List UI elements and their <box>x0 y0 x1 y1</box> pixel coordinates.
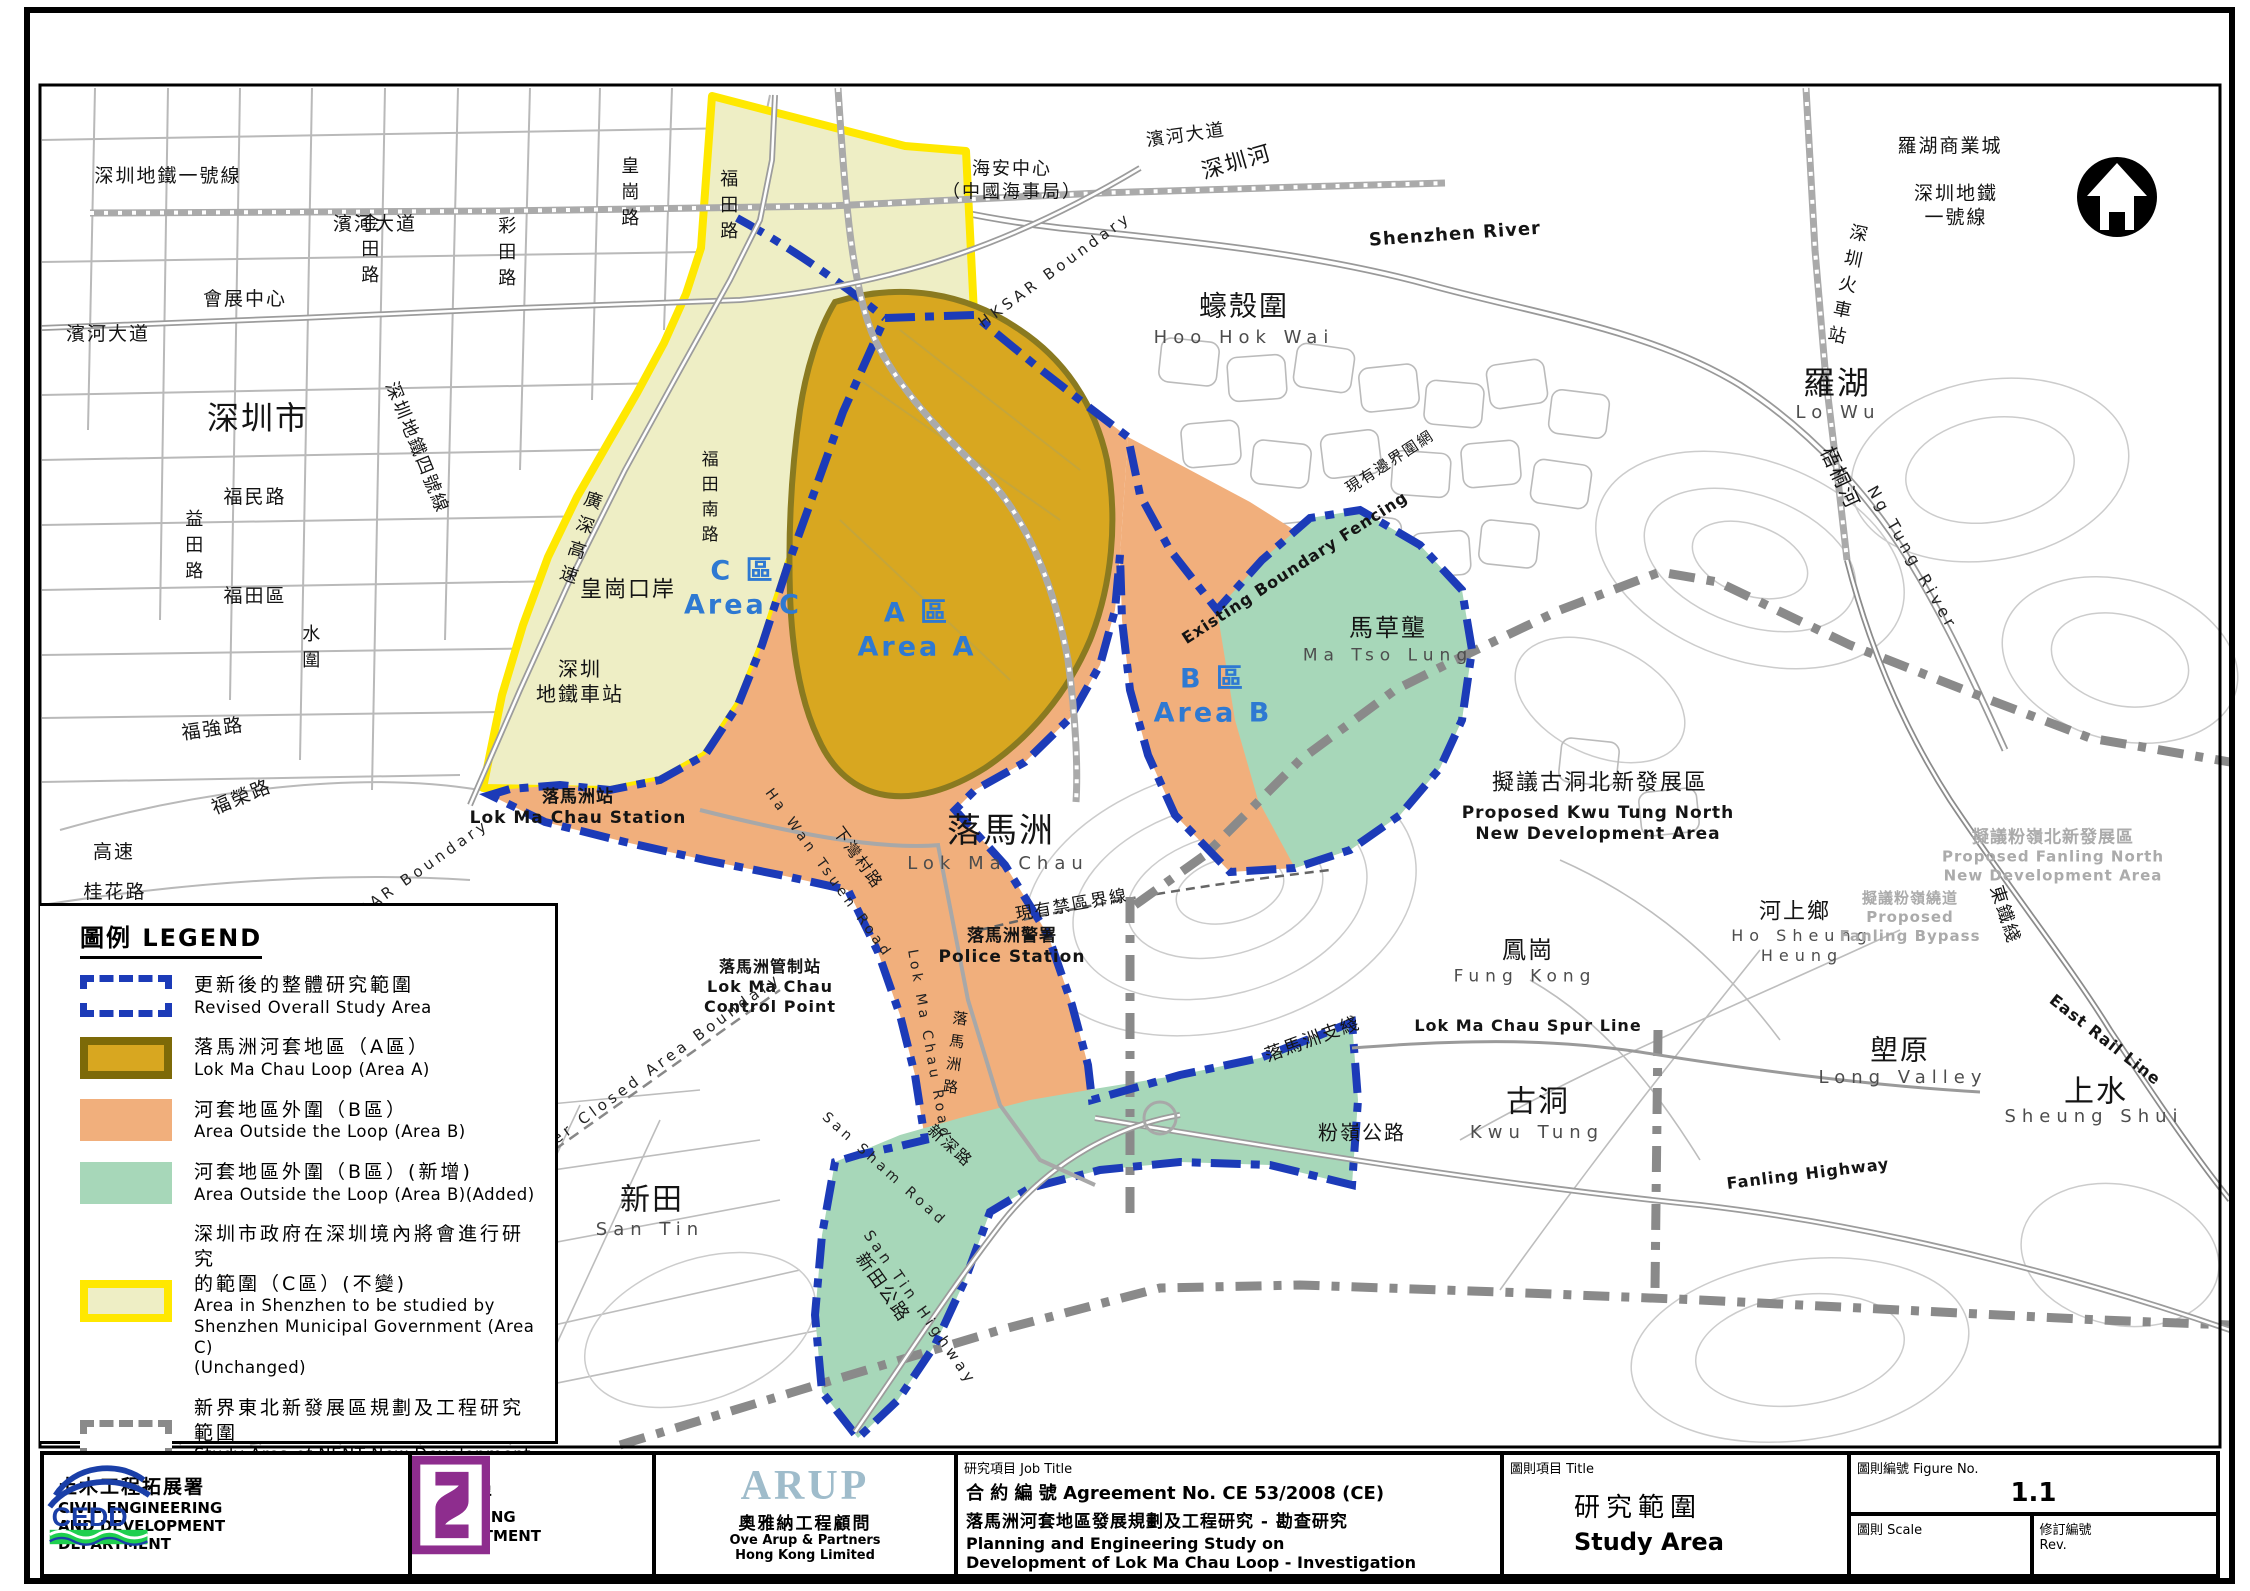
legend-item-area-b-added: 河套地區外圍（B區）(新增)Area Outside the Loop (Are… <box>80 1160 541 1205</box>
arup-name-zh: 奧雅納工程顧問 <box>739 1509 872 1534</box>
figure-number: 1.1 <box>1851 1478 2216 1508</box>
legend-text-zh: 河套地區外圍（B區）(新增) <box>194 1160 535 1185</box>
north-arrow-icon <box>2077 157 2157 237</box>
legend-text-zh: 深圳市政府在深圳境內將會進行研究 的範圍（C區）(不變) <box>194 1222 541 1296</box>
legend-item-area-a: 落馬洲河套地區（A區）Lok Ma Chau Loop (Area A) <box>80 1035 541 1080</box>
drawing-title-label: 圖則項目 Title <box>1504 1455 1847 1477</box>
legend-text-en: Area Outside the Loop (Area B)(Added) <box>194 1185 535 1206</box>
legend-text-en: Area in Shenzhen to be studied by Shenzh… <box>194 1296 541 1379</box>
legend-item-area-c: 深圳市政府在深圳境內將會進行研究 的範圍（C區）(不變)Area in Shen… <box>80 1222 541 1379</box>
legend-text-zh: 河套地區外圍（B區） <box>194 1098 466 1123</box>
legend-text-en: Lok Ma Chau Loop (Area A) <box>194 1060 430 1081</box>
planning-dept-logo <box>412 1455 490 1555</box>
arup-cell: ARUP 奧雅納工程顧問 Ove Arup & Partners Hong Ko… <box>656 1455 958 1574</box>
scale-value <box>1851 1538 2030 1541</box>
drawing-title-zh: 研究範圍 <box>1504 1477 1847 1524</box>
job-title-zh: 落馬洲河套地區發展規劃及工程研究 - 勘查研究 <box>958 1505 1500 1532</box>
rev-label: 修訂編號 Rev. <box>2034 1516 2217 1553</box>
legend-items: 更新後的整體研究範圍Revised Overall Study Area落馬洲河… <box>80 973 541 1486</box>
planning-dept-cell: 規劃署 PLANNING DEPARTMENT <box>412 1455 656 1574</box>
scale-box: 圖則 Scale <box>1851 1516 2034 1574</box>
legend-text-area-a: 落馬洲河套地區（A區）Lok Ma Chau Loop (Area A) <box>194 1035 430 1080</box>
legend-text-area-b: 河套地區外圍（B區）Area Outside the Loop (Area B) <box>194 1098 466 1143</box>
job-title-cell: 研究項目 Job Title 合 約 編 號 Agreement No. CE … <box>958 1455 1504 1574</box>
legend-text-zh: 更新後的整體研究範圍 <box>194 973 432 998</box>
arup-logo: ARUP <box>741 1465 870 1507</box>
scale-label: 圖則 Scale <box>1851 1516 2030 1538</box>
title-block: CEDD 土木工程拓展署 CIVIL ENGINEERING AND DEVEL… <box>40 1451 2220 1578</box>
legend-swatch-revised <box>80 975 172 1017</box>
legend-text-en: Area Outside the Loop (Area B) <box>194 1122 466 1143</box>
job-title-en: Planning and Engineering Study on Develo… <box>958 1532 1500 1572</box>
legend: 圖例 LEGEND 更新後的整體研究範圍Revised Overall Stud… <box>40 903 558 1444</box>
legend-text-en: Revised Overall Study Area <box>194 998 432 1019</box>
legend-swatch-area-b-added <box>80 1162 172 1204</box>
svg-text:CEDD: CEDD <box>52 1502 128 1532</box>
legend-text-zh: 新界東北新發展區規劃及工程研究範圍 <box>194 1396 541 1445</box>
job-title-label: 研究項目 Job Title <box>958 1455 1500 1477</box>
drawing-title-en: Study Area <box>1504 1524 1847 1556</box>
legend-text-area-c: 深圳市政府在深圳境內將會進行研究 的範圍（C區）(不變)Area in Shen… <box>194 1222 541 1379</box>
legend-item-revised: 更新後的整體研究範圍Revised Overall Study Area <box>80 973 541 1018</box>
legend-swatch-area-c <box>80 1280 172 1322</box>
cedd-cell: CEDD 土木工程拓展署 CIVIL ENGINEERING AND DEVEL… <box>44 1455 412 1574</box>
legend-text-area-b-added: 河套地區外圍（B區）(新增)Area Outside the Loop (Are… <box>194 1160 535 1205</box>
agreement-no: 合 約 編 號 Agreement No. CE 53/2008 (CE) <box>958 1477 1500 1505</box>
cedd-logo: CEDD <box>44 1455 159 1550</box>
drawing-title-cell: 圖則項目 Title 研究範圍 Study Area <box>1504 1455 1851 1574</box>
legend-swatch-area-b <box>80 1099 172 1141</box>
drawing-sheet: 深圳地鐵一號線金田路彩田路皇崗路福田路會展中心濱河大道濱河大道深圳市福民路益田路… <box>0 0 2250 1591</box>
legend-item-area-b: 河套地區外圍（B區）Area Outside the Loop (Area B) <box>80 1098 541 1143</box>
figure-no-box: 圖則編號 Figure No. 1.1 <box>1851 1455 2216 1516</box>
legend-swatch-area-a <box>80 1037 172 1079</box>
figure-no-label: 圖則編號 Figure No. <box>1851 1455 2216 1477</box>
legend-title: 圖例 LEGEND <box>80 918 262 959</box>
rev-box: 修訂編號 Rev. <box>2034 1516 2217 1574</box>
legend-text-revised: 更新後的整體研究範圍Revised Overall Study Area <box>194 973 432 1018</box>
figure-no-cell: 圖則編號 Figure No. 1.1 圖則 Scale 修訂編號 Rev. <box>1851 1455 2216 1574</box>
legend-text-zh: 落馬洲河套地區（A區） <box>194 1035 430 1060</box>
arup-name-en: Ove Arup & Partners Hong Kong Limited <box>729 1534 880 1564</box>
